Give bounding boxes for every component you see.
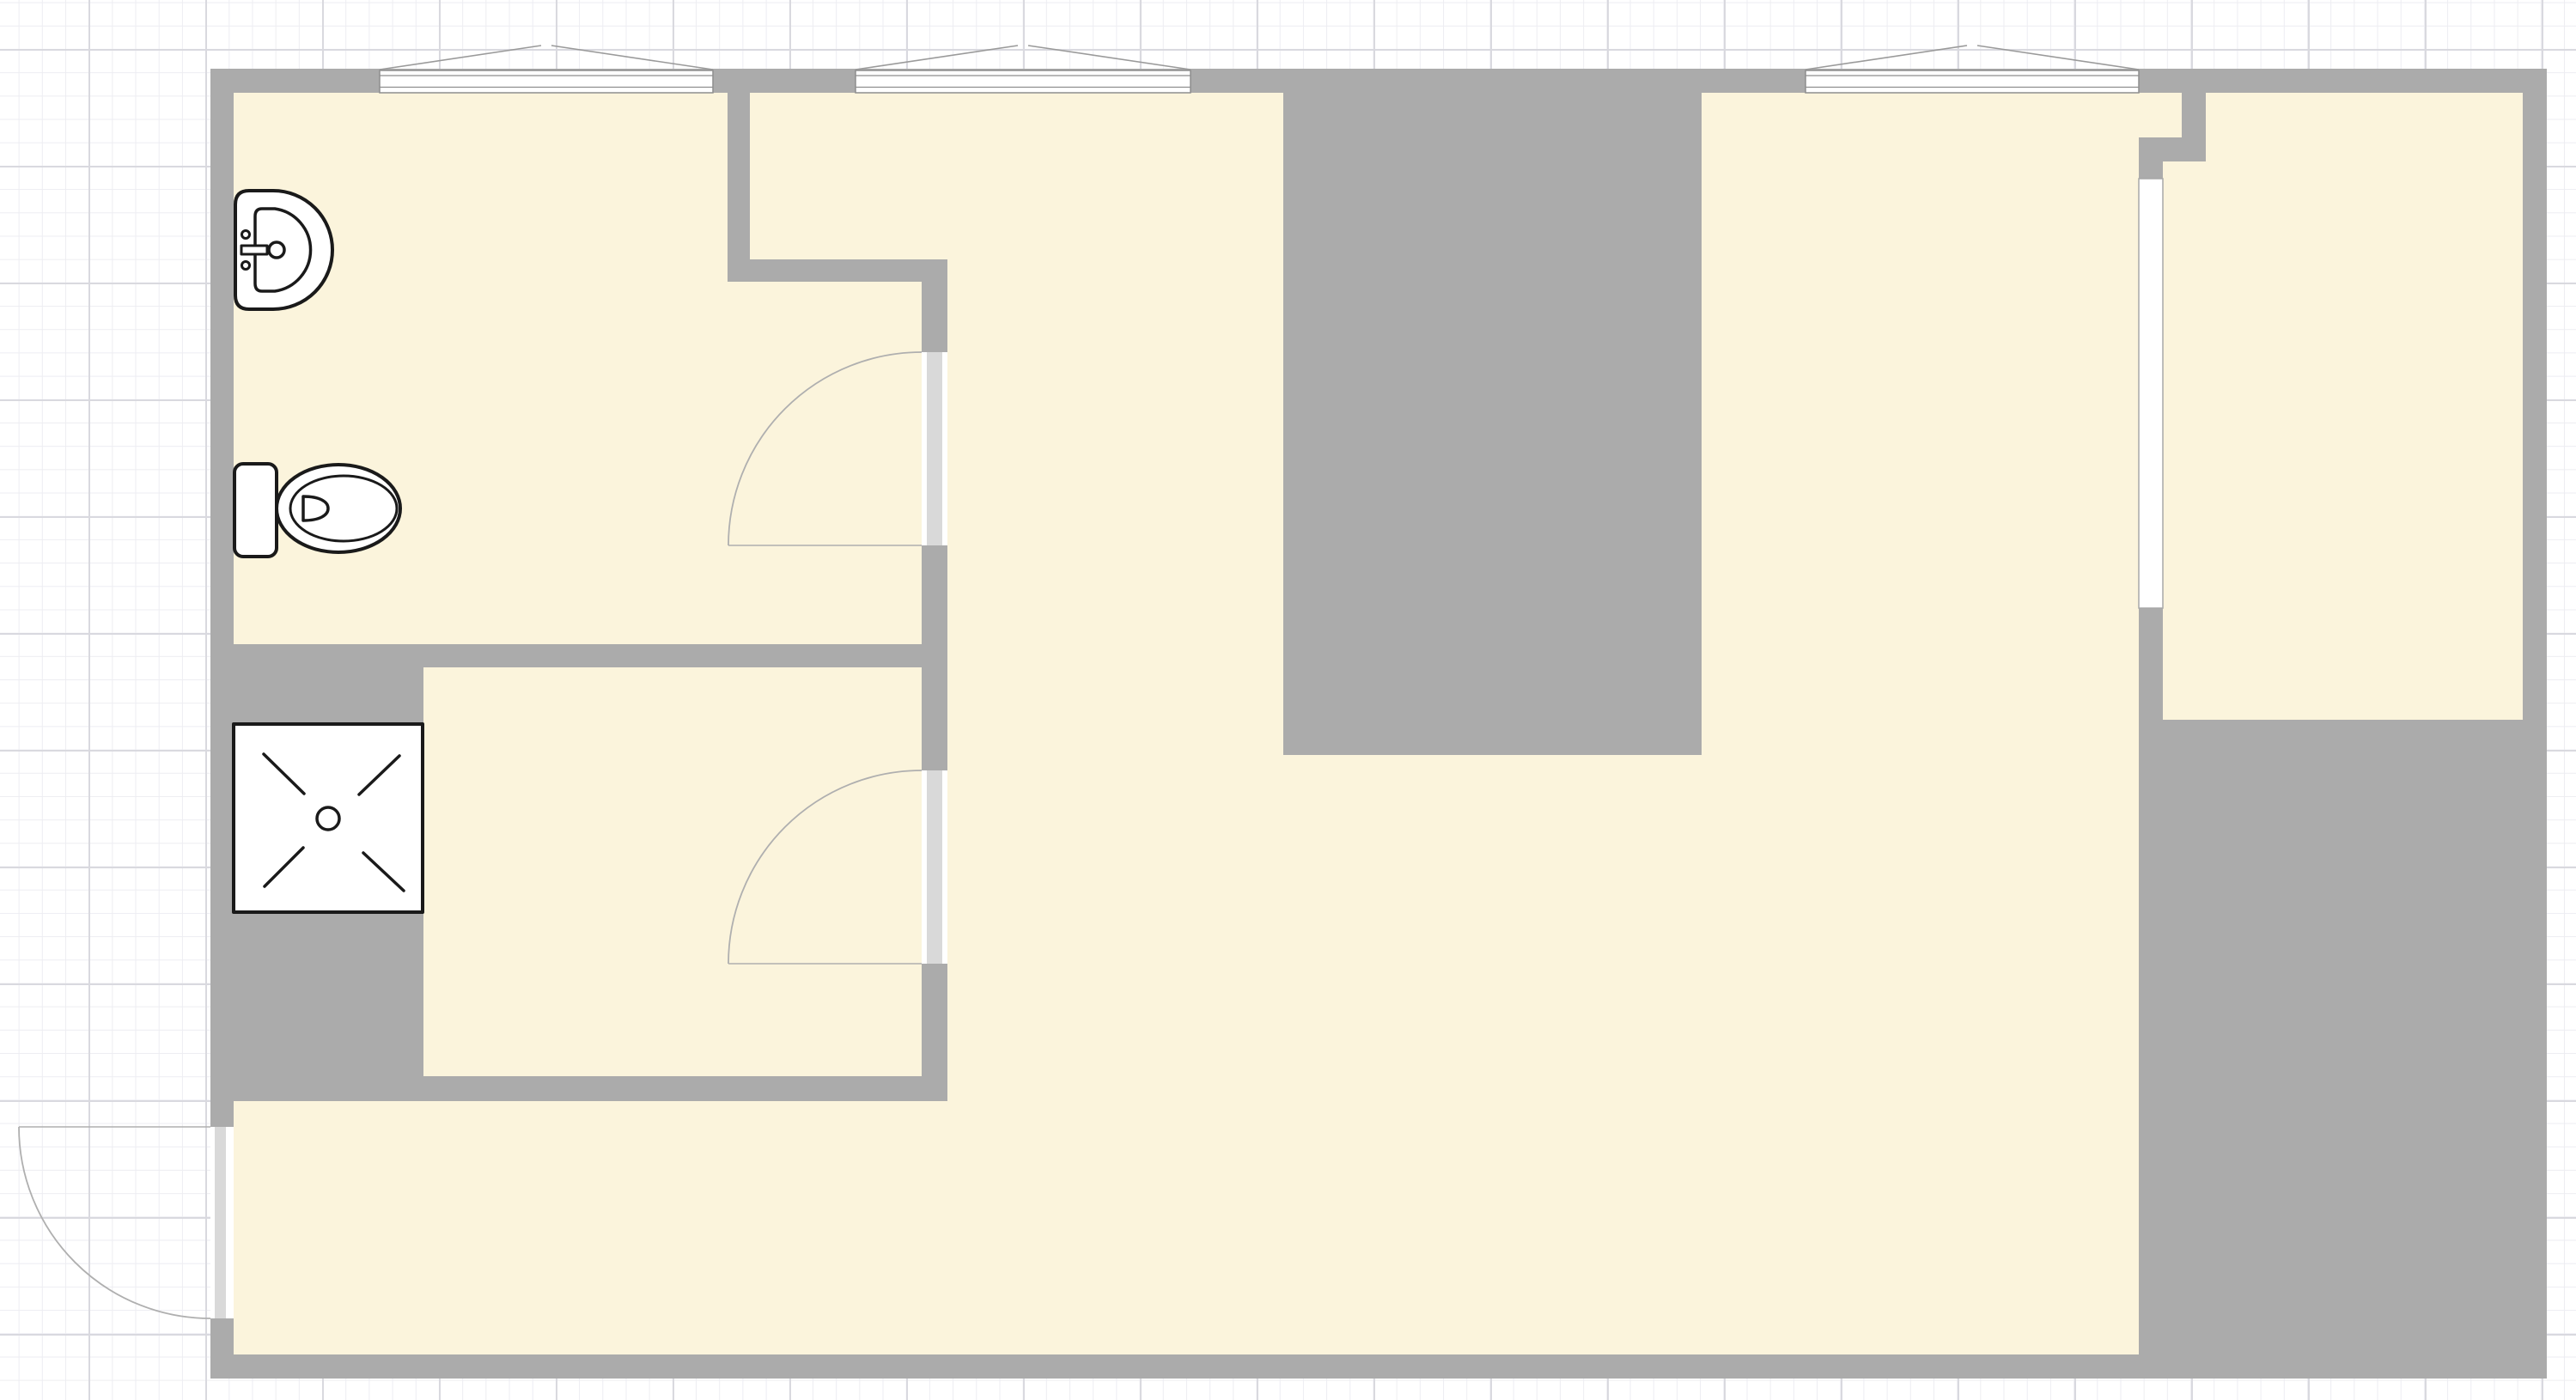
wall-jog-right-room: [2163, 137, 2206, 161]
main-room-floor-right-top[interactable]: [2139, 93, 2163, 137]
middle-room-floor[interactable]: [423, 667, 922, 1076]
right-room-floor[interactable]: [2163, 93, 2523, 720]
sink-part: [242, 231, 250, 239]
door-leaf-core: [927, 352, 942, 545]
toilet[interactable]: [234, 464, 400, 557]
window-opening-line: [1806, 46, 1967, 70]
main-room-floor-right[interactable]: [1702, 93, 2139, 755]
window-glass: [856, 70, 1191, 93]
door-leaf-core: [927, 770, 942, 964]
window-glass: [380, 70, 713, 93]
floorplan-canvas: [0, 0, 2576, 1400]
main-room-floor-topleft[interactable]: [750, 93, 1283, 259]
toilet-part: [303, 496, 328, 520]
window-opening-line: [1977, 46, 2139, 70]
bathroom-floor-lower[interactable]: [728, 282, 922, 644]
main-room-floor-lower[interactable]: [947, 755, 2139, 1354]
door-swing-arc: [19, 1127, 210, 1318]
shower-part: [317, 807, 339, 830]
window-opening-line: [551, 46, 713, 70]
corridor-floor[interactable]: [234, 1101, 947, 1354]
window-opening-line: [1028, 46, 1191, 70]
window-opening-line: [856, 46, 1018, 70]
sliding-door[interactable]: [2139, 179, 2163, 608]
window-glass: [1806, 70, 2139, 93]
bathroom-floor-upper[interactable]: [234, 93, 728, 644]
entry-door[interactable]: [19, 1127, 234, 1318]
door-leaf-core: [215, 1127, 226, 1318]
main-room-floor-left[interactable]: [947, 259, 1283, 755]
shower[interactable]: [234, 724, 423, 912]
sink-part: [269, 242, 284, 258]
sink-part: [241, 246, 267, 254]
window-opening-line: [380, 46, 541, 70]
floorplan-drawing: [0, 0, 2576, 1400]
sink-part: [242, 262, 250, 270]
toilet-part: [234, 464, 277, 557]
